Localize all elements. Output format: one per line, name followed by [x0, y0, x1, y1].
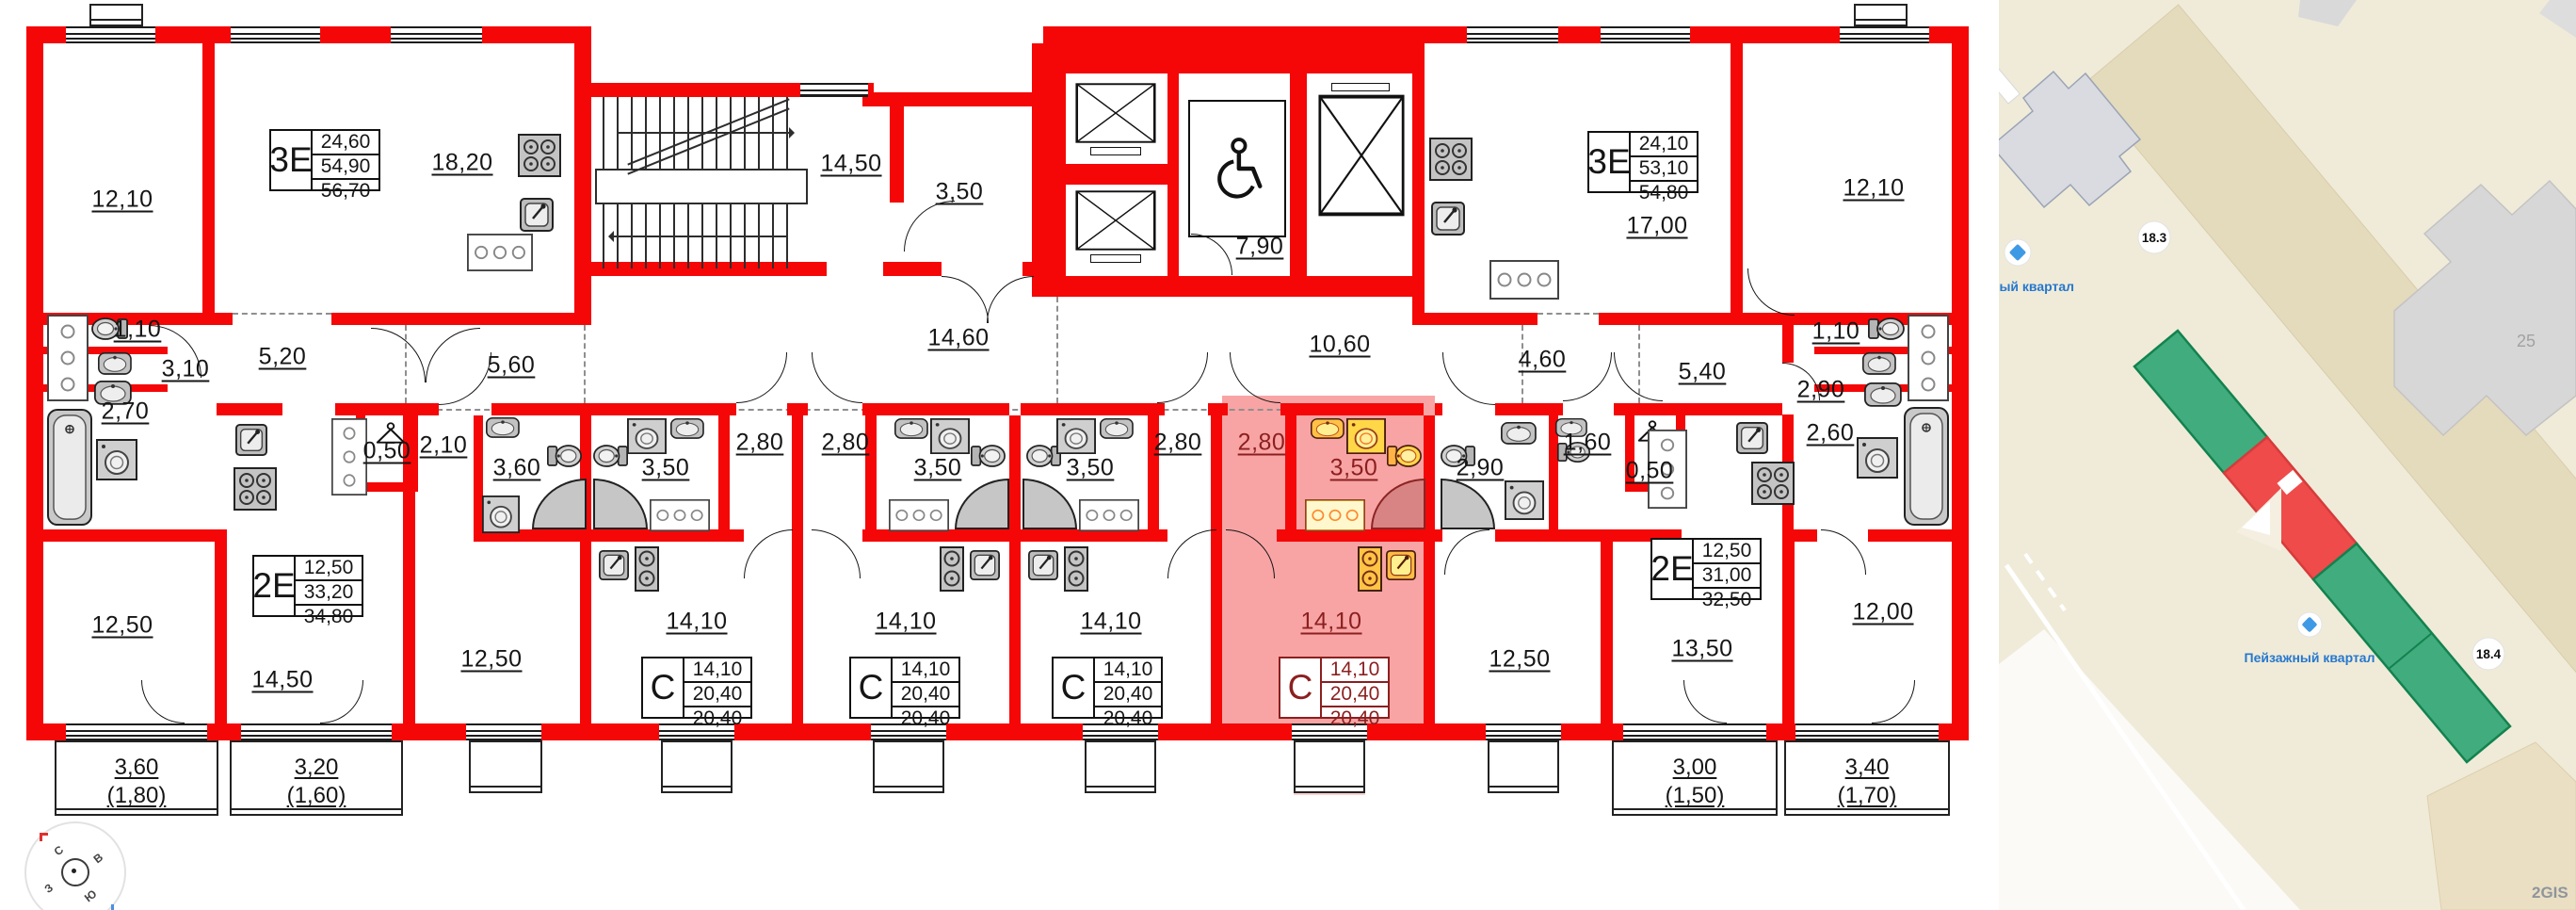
room-area-label: 3,50 — [1067, 455, 1115, 482]
wall — [1167, 73, 1179, 276]
stove4-icon — [518, 134, 561, 177]
apartment-type: 3Е — [1589, 133, 1631, 191]
wall — [26, 26, 43, 740]
compass-letter-west: З — [41, 881, 56, 896]
door-arc — [1442, 352, 1495, 405]
door-arc — [987, 276, 1034, 323]
wall — [215, 529, 227, 723]
washer-icon — [1857, 437, 1898, 479]
door-arc — [1614, 352, 1663, 401]
wall — [1601, 529, 1613, 723]
window — [1601, 26, 1690, 43]
sink-icon — [970, 550, 1000, 580]
marker-18-3-label: 18.3 — [2142, 231, 2167, 245]
room-area-label: 2,60 — [1807, 420, 1855, 447]
shower-icon — [955, 479, 1009, 529]
sink-icon — [1431, 202, 1465, 236]
wall — [1043, 276, 1424, 297]
stove4-icon — [1429, 138, 1473, 181]
stove2-icon — [635, 546, 659, 592]
compass-center-dot — [72, 869, 76, 873]
toilet-icon — [971, 444, 1006, 468]
stair-direction-arrow — [612, 236, 786, 237]
apartment-type: 2Е — [1652, 540, 1694, 598]
apartment-area-value: 14,10 — [684, 658, 750, 683]
door-arc — [1157, 352, 1208, 403]
apartment-area-value: 34,80 — [296, 606, 362, 628]
door-arc — [1563, 352, 1612, 401]
counter3h-icon — [1489, 260, 1559, 300]
room-area-label: 14,50 — [820, 151, 881, 178]
shower-icon — [593, 479, 648, 529]
window — [1623, 723, 1766, 740]
compass-south-tick — [105, 904, 114, 910]
floorplan-viewer: С В Ю З 12,1018,201,103,102,705,2012,500… — [0, 0, 2576, 910]
room-area-label: 0,50 — [363, 438, 411, 465]
balcony-area-label: 3,40(1,70) — [1838, 754, 1897, 810]
wall — [1208, 403, 1228, 415]
apartment-area-value: 24,60 — [313, 131, 378, 155]
door-arc — [320, 680, 363, 723]
wall — [1782, 529, 1795, 723]
wall — [1614, 403, 1625, 415]
wall — [1625, 403, 1782, 415]
door-arc — [1821, 529, 1866, 575]
room-area-label: 14,10 — [666, 609, 727, 636]
apartment-area-value: 24,10 — [1631, 133, 1697, 157]
elevator-door — [1090, 254, 1141, 263]
staircase — [603, 97, 800, 268]
apartment-area-value: 20,40 — [1095, 683, 1161, 707]
wall — [1549, 529, 1601, 542]
apartment-type: С — [1054, 658, 1095, 717]
stove4-icon — [1751, 462, 1795, 505]
door-arc — [904, 201, 955, 252]
bay-window — [1488, 740, 1559, 793]
room-area-label: 14,10 — [1080, 609, 1141, 636]
wall — [1782, 325, 1794, 363]
balcony-area-label: 3,20(1,60) — [287, 754, 346, 810]
room-area-label: 2,90 — [1457, 455, 1505, 482]
room-area-label: 4,60 — [1519, 347, 1567, 374]
wall — [1794, 529, 1817, 542]
wall — [1021, 403, 1165, 415]
boundary-dashed — [233, 313, 331, 317]
room-area-label: 2,80 — [1238, 430, 1286, 457]
map-watermark: 2GIS — [2532, 884, 2568, 902]
room-area-label: 3,50 — [642, 455, 690, 482]
shower-icon — [1022, 479, 1077, 529]
window — [391, 26, 482, 43]
shower-icon — [1441, 479, 1495, 529]
washer-icon — [1056, 418, 1096, 454]
door-arc — [1747, 268, 1795, 316]
room-area-label: 1,10 — [1812, 318, 1860, 346]
room-area-label: 17,00 — [1626, 213, 1687, 240]
wall — [1424, 415, 1435, 723]
elevator-icon — [1075, 83, 1156, 143]
wall — [1599, 313, 1731, 325]
apartment-type: С — [643, 658, 684, 717]
apartment-area-value: 20,40 — [684, 683, 750, 707]
room-area-label: 5,60 — [488, 352, 536, 380]
window — [241, 723, 392, 740]
apartment-area-value: 20,40 — [684, 707, 750, 730]
elevator-icon — [1075, 190, 1156, 251]
wall — [787, 403, 808, 415]
room-area-label: 12,50 — [460, 646, 522, 674]
elevator-door — [1331, 83, 1390, 91]
basin-icon — [486, 417, 520, 438]
door-arc — [736, 352, 787, 403]
room-area-label: 5,20 — [259, 344, 307, 371]
wall — [1435, 403, 1442, 415]
stove2-icon — [940, 546, 964, 592]
door-arc — [1444, 529, 1489, 575]
room-area-label: 7,90 — [1236, 234, 1284, 261]
apartment-area-value: 20,40 — [1322, 707, 1388, 730]
stove2-icon — [1064, 546, 1088, 592]
apartment-area-value: 54,90 — [313, 155, 378, 180]
room-area-label: 12,50 — [1489, 646, 1550, 674]
apartment-area-value: 14,10 — [1095, 658, 1161, 683]
poi-label-clipped: ный квартал — [1999, 279, 2074, 294]
sink-icon — [1736, 422, 1768, 454]
sink-icon — [235, 424, 267, 456]
room-area-label: 2,80 — [736, 430, 784, 457]
boundary-dashed — [1056, 297, 1060, 403]
window — [66, 26, 155, 43]
apartment-info-table[interactable]: 2Е 12,5031,0032,50 — [1650, 538, 1762, 600]
room-area-label: 14,60 — [927, 325, 989, 352]
compass-rose: С В Ю З — [24, 821, 126, 910]
toilet-icon — [1868, 317, 1906, 341]
door-arc — [1191, 234, 1232, 275]
counter3h-icon — [467, 234, 533, 271]
sink-icon — [520, 198, 554, 232]
washer-icon — [1346, 418, 1386, 454]
window — [1486, 723, 1561, 740]
room-area-label: 3,50 — [1330, 455, 1378, 482]
washer-icon — [482, 496, 520, 533]
room-area-label: 13,50 — [1671, 636, 1732, 663]
door-arc — [439, 352, 491, 405]
tub-icon — [1904, 407, 1949, 526]
room-area-label: 3,50 — [936, 179, 984, 206]
elevator-icon — [1318, 94, 1405, 217]
wall — [1731, 43, 1743, 325]
marker-18-4[interactable]: 18.4 — [2472, 638, 2504, 670]
counter3h-icon — [1079, 499, 1139, 531]
apartment-info-table[interactable]: С 14,1020,4020,40 — [641, 657, 752, 719]
basin-icon — [98, 352, 132, 375]
apartment-area-value: 20,40 — [893, 707, 958, 730]
basin-icon — [1864, 382, 1902, 407]
apartment-area-value: 54,80 — [1631, 182, 1697, 204]
door-arc — [812, 352, 862, 403]
counter3v-icon — [1908, 315, 1949, 401]
washer-icon — [1505, 480, 1544, 520]
basin-icon — [894, 418, 928, 439]
room-area-label: 12,50 — [91, 612, 153, 640]
wall — [1009, 415, 1021, 723]
apartment-info-table[interactable]: 2Е 12,5033,2034,80 — [252, 555, 363, 617]
wall — [1022, 262, 1032, 276]
room-area-label: 2,10 — [420, 432, 468, 460]
toilet-icon — [1387, 444, 1423, 468]
room-area-label: 2,80 — [1154, 430, 1202, 457]
basin-icon — [670, 418, 704, 439]
boundary-dashed — [1538, 313, 1599, 317]
marker-18-3[interactable]: 18.3 — [2138, 221, 2170, 253]
apartment-area-value: 31,00 — [1694, 564, 1760, 589]
sink-icon — [599, 550, 629, 580]
counter3h-icon — [1305, 499, 1365, 531]
wall — [202, 43, 215, 325]
wall — [202, 313, 233, 325]
wall — [1435, 529, 1442, 542]
room-area-label: 12,10 — [1843, 175, 1904, 203]
basin-icon — [1501, 422, 1537, 445]
wall — [335, 403, 405, 415]
door-arc — [1872, 680, 1915, 723]
apartment-area-value: 32,50 — [1694, 589, 1760, 611]
wall — [217, 403, 282, 415]
room-area-label: 5,40 — [1679, 359, 1727, 386]
shower-icon — [532, 479, 587, 529]
stair-direction-arrow — [617, 132, 791, 134]
window — [231, 26, 320, 43]
room-area-label: 14,50 — [251, 667, 313, 694]
counter3h-icon — [889, 499, 949, 531]
washer-icon — [96, 439, 137, 480]
window — [800, 83, 868, 97]
window — [66, 723, 207, 740]
toilet-icon — [547, 444, 583, 468]
door-arc — [1683, 680, 1727, 723]
apartment-type: С — [851, 658, 893, 717]
apartment-area-value: 33,20 — [296, 581, 362, 606]
bay-window — [661, 740, 733, 793]
apartment-area-value: 56,70 — [313, 180, 378, 203]
apartment-area-value: 53,10 — [1631, 157, 1697, 182]
toilet-icon — [592, 444, 628, 468]
door-arc — [812, 529, 861, 578]
wall — [868, 92, 1032, 106]
compass-north-tick — [40, 833, 48, 841]
counter3v-icon — [331, 418, 367, 496]
wall — [1032, 43, 1066, 297]
wall — [491, 403, 591, 415]
washer-icon — [627, 418, 667, 454]
wall — [1066, 164, 1167, 185]
room-area-label: 12,00 — [1852, 599, 1913, 626]
basin-icon — [1862, 352, 1896, 375]
map-panel[interactable]: 25 18.3 18.4 ный квартал Пейзажный квар — [1999, 0, 2576, 910]
wall — [862, 403, 1009, 415]
stove2-icon — [1358, 546, 1382, 592]
poi-label: Пейзажный квартал — [2245, 650, 2375, 665]
apartment-info-table[interactable]: С 14,1020,4020,40 — [1279, 657, 1390, 719]
room-area-label: 1,10 — [114, 317, 162, 344]
apartment-area-value: 12,50 — [1694, 540, 1760, 564]
bay-window — [1294, 740, 1365, 793]
stove4-icon — [233, 467, 277, 511]
room-area-label: 3,50 — [914, 455, 962, 482]
window — [1467, 26, 1558, 43]
wall — [883, 262, 942, 276]
apartment-info-table[interactable]: С 14,1020,4020,40 — [849, 657, 960, 719]
wall — [1290, 43, 1307, 276]
room-area-label: 3,60 — [493, 455, 541, 482]
boundary-dashed — [584, 325, 588, 403]
door-arc — [1167, 529, 1216, 578]
door-arc — [141, 680, 185, 723]
upper-balcony — [1854, 4, 1908, 26]
apartment-area-value: 12,50 — [296, 557, 362, 581]
compass-letter-east: В — [91, 851, 105, 866]
room-area-label: 0,50 — [1626, 458, 1674, 485]
balcony-area-label: 3,00(1,50) — [1666, 754, 1725, 810]
wheelchair-lift-room — [1188, 100, 1286, 237]
compass-letter-south: Ю — [82, 887, 99, 905]
apartment-area-value: 20,40 — [893, 683, 958, 707]
room-area-label: 2,70 — [102, 398, 150, 426]
wall — [792, 415, 803, 723]
room-area-label: 18,20 — [431, 150, 492, 177]
wall — [405, 403, 439, 415]
room-area-label: 2,80 — [822, 430, 870, 457]
wall — [331, 313, 574, 325]
wall — [890, 97, 904, 203]
counter3h-icon — [650, 499, 710, 531]
window — [466, 723, 541, 740]
bay-window — [1085, 740, 1156, 793]
wall — [1495, 403, 1549, 415]
counter3v-icon — [47, 315, 89, 401]
wall — [43, 529, 217, 542]
wall — [574, 26, 591, 325]
building-25-label: 25 — [2517, 332, 2536, 350]
bay-window — [469, 740, 542, 793]
wall — [591, 83, 800, 97]
apartment-info-table[interactable]: С 14,1020,4020,40 — [1052, 657, 1163, 719]
wall — [1280, 403, 1424, 415]
elevator-door — [1090, 147, 1141, 155]
apartment-type: 2Е — [254, 557, 296, 615]
apartment-area-value: 14,10 — [893, 658, 958, 683]
window — [1795, 723, 1939, 740]
wall — [718, 415, 730, 529]
bay-window — [873, 740, 944, 793]
tub-icon — [47, 409, 92, 526]
door-arc — [371, 328, 426, 382]
apartment-area-value: 20,40 — [1095, 707, 1161, 730]
window — [1840, 26, 1929, 43]
wall — [1952, 26, 1969, 740]
wall — [1043, 43, 1424, 73]
wall — [1868, 529, 1952, 542]
room-area-label: 14,10 — [1300, 609, 1361, 636]
door-arc — [744, 529, 793, 578]
sink-icon — [1386, 550, 1416, 580]
apartment-area-value: 14,10 — [1322, 658, 1388, 683]
door-arc — [942, 276, 989, 323]
room-area-label: 2,90 — [1797, 377, 1845, 404]
wall — [1425, 313, 1538, 325]
room-area-label: 10,60 — [1309, 332, 1370, 359]
room-area-label: 1,60 — [1564, 430, 1612, 457]
room-area-label: 3,10 — [162, 356, 210, 383]
marker-18-4-label: 18.4 — [2476, 647, 2502, 661]
apartment-type: С — [1280, 658, 1322, 717]
room-area-label: 12,10 — [91, 187, 153, 214]
basin-icon — [1311, 418, 1344, 439]
apartment-area-value: 20,40 — [1322, 683, 1388, 707]
washer-icon — [930, 418, 970, 454]
stair-break-line — [627, 107, 789, 174]
apartment-info-table[interactable]: 3Е 24,6054,9056,70 — [269, 129, 380, 191]
wall — [1285, 415, 1296, 529]
wall — [591, 403, 736, 415]
sink-icon — [1028, 550, 1058, 580]
upper-balcony — [89, 4, 143, 26]
apartment-type: 3Е — [271, 131, 313, 189]
balcony-area-label: 3,60(1,80) — [107, 754, 167, 810]
basin-icon — [1100, 418, 1134, 439]
wheelchair-icon — [1211, 137, 1264, 201]
compass-letter-north: С — [52, 843, 66, 858]
wall — [1549, 403, 1563, 415]
room-area-label: 14,10 — [875, 609, 936, 636]
apartment-info-table[interactable]: 3Е 24,1053,1054,80 — [1587, 131, 1699, 193]
